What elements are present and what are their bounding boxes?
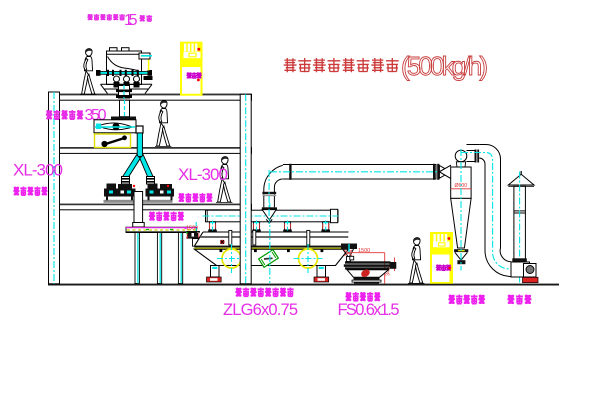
- svg-text:1.5: 1.5: [124, 12, 138, 29]
- svg-text:ZLG6x0.75: ZLG6x0.75: [223, 301, 298, 319]
- svg-text:(500kg/h): (500kg/h): [401, 51, 488, 81]
- svg-text:1500: 1500: [358, 248, 370, 254]
- svg-text:XL-300: XL-300: [13, 161, 63, 180]
- svg-text:FS0.6x1.5: FS0.6x1.5: [338, 301, 400, 319]
- svg-text:XL-300: XL-300: [178, 165, 228, 184]
